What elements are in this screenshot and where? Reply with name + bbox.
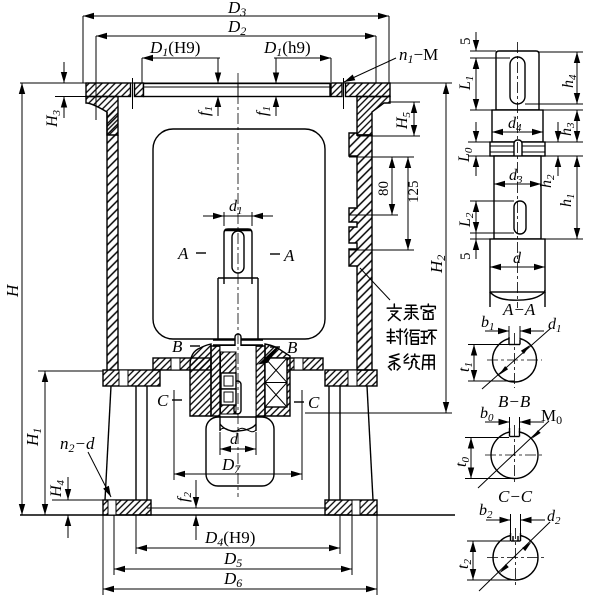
svg-text:H4: H4 bbox=[48, 479, 67, 498]
svg-text:B: B bbox=[287, 338, 298, 357]
svg-text:f1: f1 bbox=[196, 106, 215, 116]
svg-text:C: C bbox=[308, 393, 320, 412]
svg-text:H2: H2 bbox=[427, 255, 448, 274]
svg-text:b1: b1 bbox=[481, 314, 495, 333]
svg-text:B: B bbox=[172, 337, 183, 356]
svg-text:M0: M0 bbox=[541, 406, 562, 427]
svg-text:L0: L0 bbox=[456, 147, 475, 163]
svg-text:D5: D5 bbox=[223, 549, 242, 570]
svg-text:b0: b0 bbox=[480, 405, 494, 424]
svg-text:B−B: B−B bbox=[498, 392, 531, 411]
svg-text:H3: H3 bbox=[44, 109, 63, 128]
svg-text:h4: h4 bbox=[560, 74, 579, 88]
svg-text:H: H bbox=[3, 283, 22, 298]
svg-text:D2: D2 bbox=[227, 17, 246, 38]
svg-text:L2: L2 bbox=[457, 212, 476, 228]
svg-text:5: 5 bbox=[458, 253, 474, 261]
svg-text:n1−M: n1−M bbox=[399, 45, 438, 66]
svg-text:H5: H5 bbox=[394, 111, 413, 130]
svg-text:D4(H9): D4(H9) bbox=[204, 528, 255, 549]
svg-text:H1: H1 bbox=[23, 428, 44, 447]
svg-text:L1: L1 bbox=[457, 76, 476, 91]
svg-text:h1: h1 bbox=[558, 194, 577, 208]
svg-text:d2: d2 bbox=[547, 508, 561, 527]
svg-text:D1(H9): D1(H9) bbox=[149, 38, 200, 59]
svg-text:C−C: C−C bbox=[498, 487, 533, 506]
svg-text:t2: t2 bbox=[455, 559, 474, 569]
svg-text:t0: t0 bbox=[453, 457, 472, 467]
svg-text:h3: h3 bbox=[558, 122, 577, 136]
svg-text:f1: f1 bbox=[254, 106, 273, 116]
svg-text:80: 80 bbox=[376, 181, 392, 196]
svg-text:C: C bbox=[157, 391, 169, 410]
svg-text:125: 125 bbox=[406, 181, 422, 204]
svg-text:A−A: A−A bbox=[502, 300, 536, 319]
svg-text:t1: t1 bbox=[456, 362, 475, 372]
svg-text:D6: D6 bbox=[223, 569, 242, 590]
svg-text:D1(h9): D1(h9) bbox=[263, 38, 311, 59]
svg-text:A: A bbox=[177, 244, 189, 263]
svg-text:d1: d1 bbox=[548, 316, 562, 335]
svg-text:f2: f2 bbox=[175, 492, 194, 502]
svg-text:n2−d: n2−d bbox=[60, 434, 95, 455]
svg-text:5: 5 bbox=[458, 38, 474, 46]
svg-text:A: A bbox=[283, 246, 295, 265]
svg-text:b2: b2 bbox=[479, 502, 493, 521]
